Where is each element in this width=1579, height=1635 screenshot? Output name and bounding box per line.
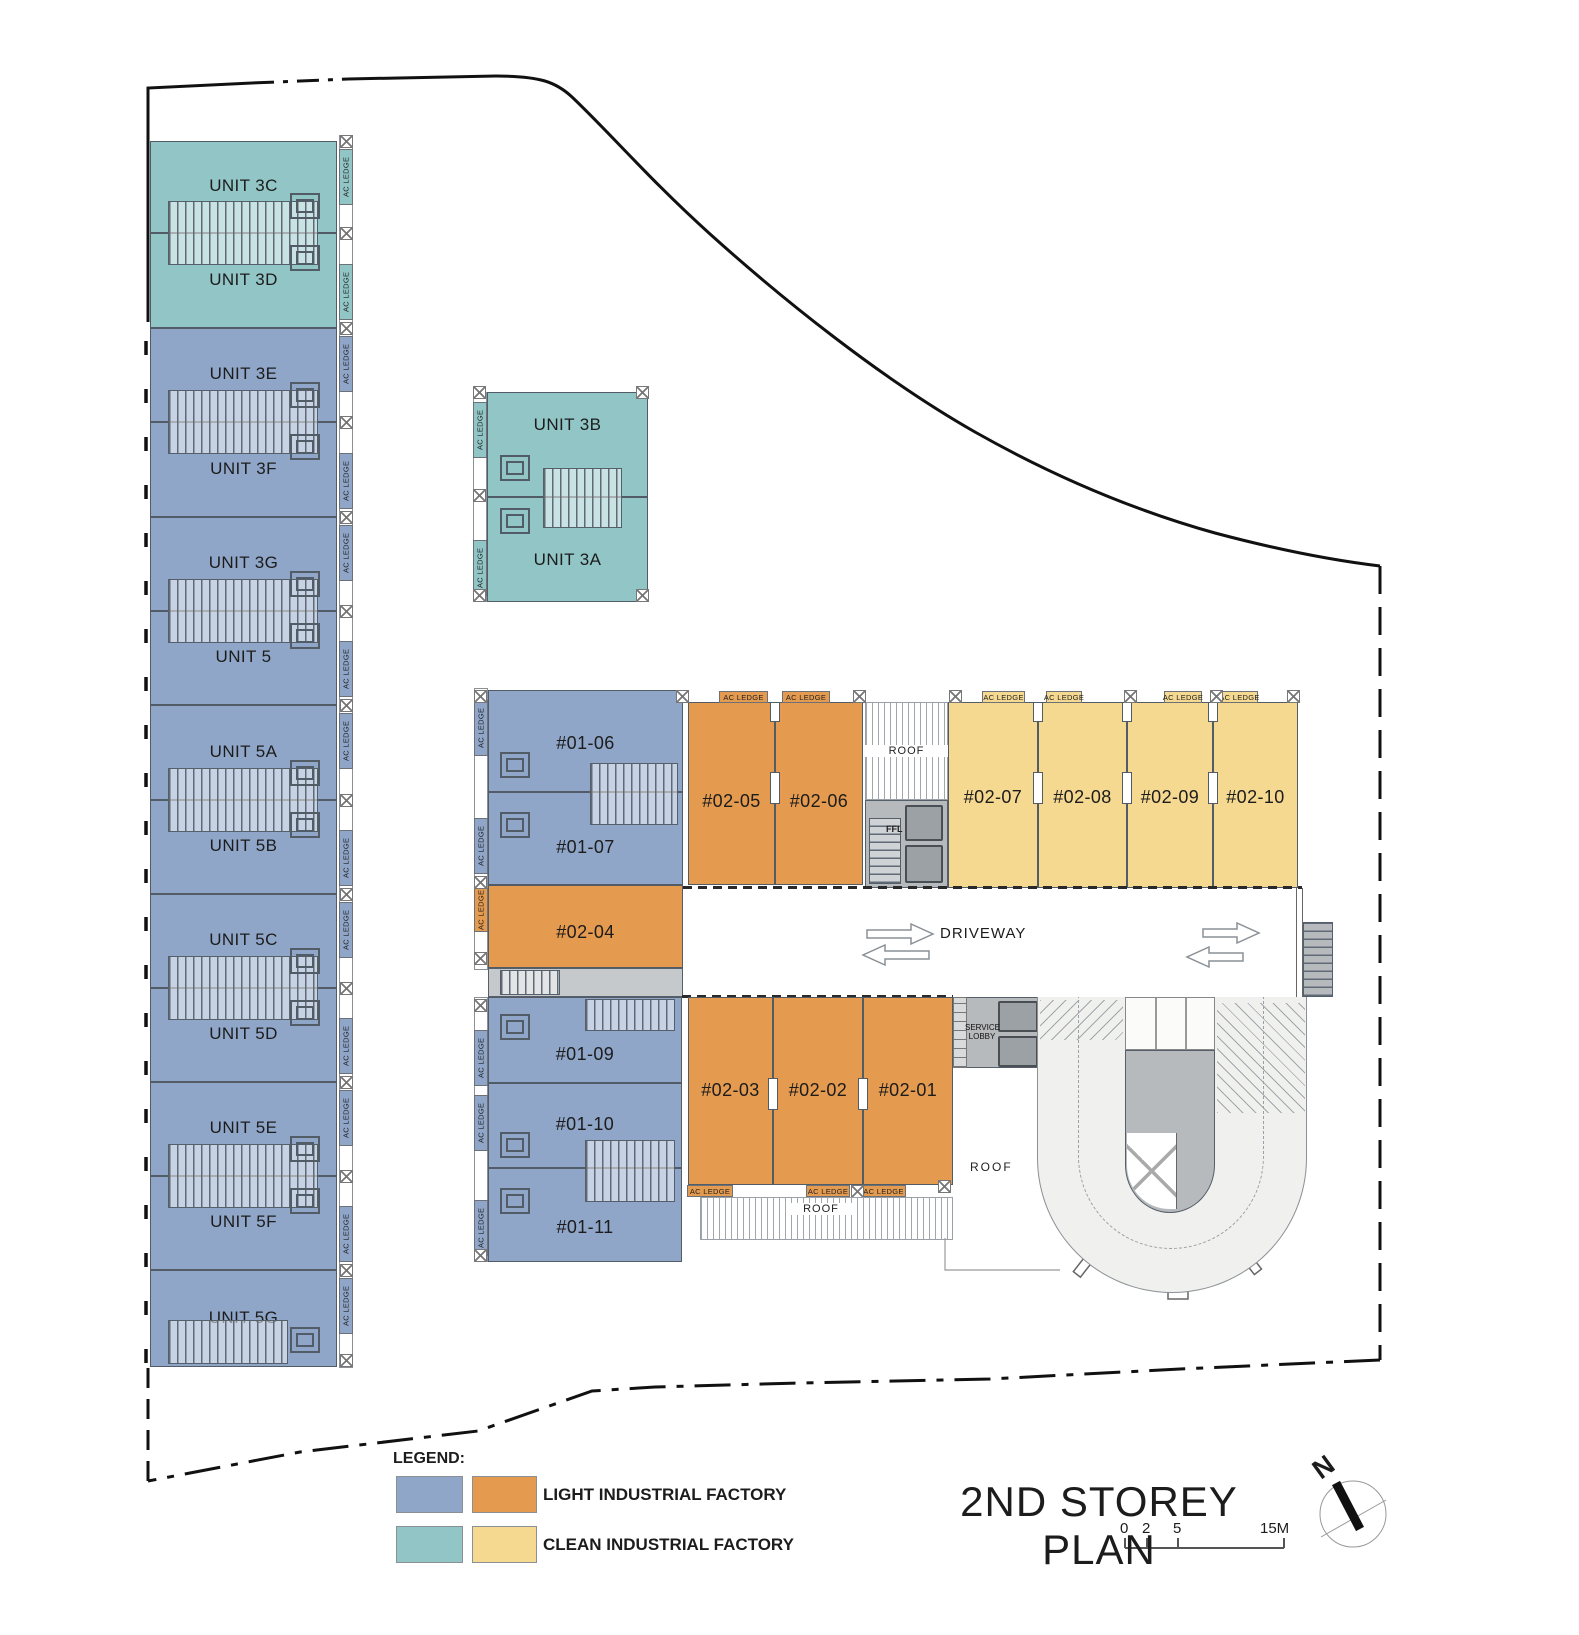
unit-label: #02-03 [689,1080,772,1101]
unit-02-02: #02-02 [773,997,863,1185]
legend-swatch-blue [396,1476,463,1513]
column-symbol-icon [290,382,320,408]
ledge-x-marker [340,982,353,995]
column-symbol-icon [290,948,320,974]
unit-label: #02-01 [864,1080,952,1101]
ac-ledge-label: AC LEDGE [474,1200,488,1256]
legend-swatch-orange [472,1476,537,1513]
ledge-x-marker [340,699,353,712]
ledge-x-marker [473,386,486,399]
column-symbol-icon [500,1014,530,1040]
ledge-x-marker [473,589,486,602]
ac-ledge-label: AC LEDGE [474,1030,488,1086]
wall-pier [1033,702,1043,722]
unit-02-08: #02-08 [1038,702,1127,888]
unit-label: UNIT 5D [151,1024,336,1044]
ledge-x-marker [636,589,649,602]
ledge-x-marker [474,999,487,1012]
lift-car [998,1001,1038,1032]
column-symbol-icon [290,760,320,786]
column-symbol-icon [290,1188,320,1214]
lift-car [905,845,943,883]
unit-label: #02-07 [949,787,1037,808]
site-boundary-bottom [148,1360,1380,1481]
stair-icon [500,970,560,995]
bay-divider [1185,998,1187,1049]
column-symbol-icon [290,1136,320,1162]
ledge-x-marker [676,690,689,703]
unit-02-09: #02-09 [1127,702,1213,888]
ac-ledge-label: AC LEDGE [339,1018,353,1074]
wall-pier [770,772,780,804]
ledge-x-marker [340,1076,353,1089]
column-symbol-icon [500,812,530,838]
ac-ledge-label: AC LEDGE [474,1095,488,1151]
unit-label: UNIT 3A [488,550,647,570]
scale-tick-label: 15M [1260,1520,1289,1537]
ledge-x-marker [949,690,962,703]
unit-label: UNIT 5B [151,836,336,856]
legend-item-label: CLEAN INDUSTRIAL FACTORY [543,1535,794,1555]
wall-pier [768,1078,778,1110]
ledge-x-marker [340,1264,353,1277]
wall-pier [1122,772,1132,804]
unit-02-04: #02-04 [488,885,683,968]
wall-pier [1122,702,1132,722]
ledge-x-marker [340,794,353,807]
wall-pier [770,702,780,722]
unit-label: UNIT 3G [151,553,336,573]
unit-label: #01-11 [489,1217,681,1238]
ledge-x-marker [340,1170,353,1183]
unit-label: #01-09 [489,1044,681,1065]
ledge-x-marker [340,1354,353,1367]
ledge-x-marker [340,605,353,618]
legend-swatch-yellow [472,1526,537,1563]
unit-label: #02-02 [774,1080,862,1101]
ac-ledge-label: AC LEDGE [1221,691,1258,703]
scale-tick-label: 2 [1142,1520,1150,1537]
ledge-x-marker [1287,690,1300,703]
unit-02-06: #02-06 [775,702,863,885]
ramp-chevron-hatch [1217,1003,1305,1113]
driveway-edge-dashed [683,886,1302,889]
ac-ledge-label: AC LEDGE [339,1278,353,1334]
column-symbol-icon [290,1327,320,1353]
unit-label: #02-06 [776,791,862,812]
ac-ledge-label: AC LEDGE [719,691,768,703]
ac-ledge-label: AC LEDGE [474,818,488,874]
column-symbol-icon [500,455,530,481]
page-title: 2ND STOREY PLAN [904,1478,1294,1574]
column-symbol-icon [290,571,320,597]
ledge-x-marker [1124,690,1137,703]
unit-02-07: #02-07 [948,702,1038,888]
driveway-right-wall [1296,888,1303,997]
unit-label: #02-09 [1128,787,1212,808]
unit-label: UNIT 5E [151,1118,336,1138]
ledge-x-marker [340,888,353,901]
column-symbol-icon [290,1000,320,1026]
ac-ledge-label: AC LEDGE [1164,691,1202,703]
ledge-x-marker [474,876,487,889]
ledge-x-marker [474,1249,487,1262]
north-arrow-icon [1320,1481,1386,1547]
unit-02-03: #02-03 [688,997,773,1185]
bay-divider [1155,998,1157,1049]
ledge-x-marker [474,690,487,703]
ac-ledge-label: AC LEDGE [782,691,830,703]
ledge-x-marker [340,227,353,240]
ac-ledge-label: AC LEDGE [687,1185,733,1197]
column-symbol-icon [290,193,320,219]
wall-pier [1208,772,1218,804]
ac-ledge-label: AC LEDGE [473,540,487,596]
ac-ledge-label: AC LEDGE [339,830,353,886]
ffl-label: FFL [886,824,903,834]
ledge-x-marker [853,690,866,703]
ac-ledge-label: AC LEDGE [339,336,353,392]
ac-ledge-label: AC LEDGE [339,902,353,958]
column-symbol-icon [290,812,320,838]
floor-plan-canvas: UNIT 3C UNIT 3D UNIT 3E UNIT 3F UNIT 3G … [0,0,1579,1635]
ledge-x-marker [340,416,353,429]
roof-apron-line [945,1238,1060,1270]
ledge-x-marker [474,952,487,965]
unit-label: #02-05 [689,791,774,812]
roof-label: ROOF [865,745,948,757]
column-symbol-icon [500,508,530,534]
ac-ledge-label: AC LEDGE [339,713,353,769]
ledge-x-marker [340,322,353,335]
roof-label: ROOF [790,1203,852,1215]
ac-ledge-label: AC LEDGE [339,641,353,697]
loading-bays [1125,997,1215,1050]
ramp-hatch [1040,1000,1123,1040]
unit-label: #01-07 [489,837,682,858]
ledge-x-marker [938,1180,951,1193]
column-symbol-icon [290,623,320,649]
site-boundary-dashdot [252,79,348,83]
scale-tick-label: 5 [1173,1520,1181,1537]
ac-ledge-label: AC LEDGE [339,1206,353,1262]
scale-tick-label: 0 [1120,1520,1128,1537]
legend-heading: LEGEND: [393,1450,465,1468]
stair-icon [585,1140,675,1202]
legend-swatch-teal [396,1526,463,1563]
lift-car [998,1036,1038,1067]
ac-ledge-label: AC LEDGE [339,453,353,509]
unit-label: UNIT 3D [151,270,336,290]
column-symbol-icon [500,1188,530,1214]
wall-pier [858,1078,868,1110]
ledge-x-marker [340,135,353,148]
unit-02-05: #02-05 [688,702,775,885]
north-label: N [1307,1449,1341,1486]
unit-label: UNIT 5 [151,647,336,667]
unit-label: #02-08 [1039,787,1126,808]
stair-icon [590,763,678,825]
unit-label: #01-06 [489,733,682,754]
ac-ledge-label: AC LEDGE [339,1090,353,1146]
unit-label: UNIT 5A [151,742,336,762]
ac-ledge-label: AC LEDGE [1046,691,1082,703]
ac-ledge-label: AC LEDGE [339,525,353,581]
service-lobby-label: SERVICE LOBBY [965,1023,999,1041]
unit-label: UNIT 5C [151,930,336,950]
ac-ledge-label: AC LEDGE [473,402,487,458]
ac-ledge-label: AC LEDGE [339,264,353,320]
unit-02-01: #02-01 [863,997,953,1185]
ac-ledge-label: AC LEDGE [982,691,1025,703]
unit-label: #02-10 [1214,787,1297,808]
ledge-x-marker [636,386,649,399]
column-symbol-icon [290,434,320,460]
column-symbol-icon [500,1132,530,1158]
ac-ledge-label: AC LEDGE [474,700,488,756]
driveway-label: DRIVEWAY [940,925,1026,942]
unit-label: UNIT 3E [151,364,336,384]
wall-pier [1033,772,1043,804]
stair-icon [168,1320,288,1364]
unit-02-10: #02-10 [1213,702,1298,888]
unit-label: UNIT 3F [151,459,336,479]
ledge-x-marker [473,489,486,502]
legend-item-label: LIGHT INDUSTRIAL FACTORY [543,1485,786,1505]
ac-ledge-label: AC LEDGE [474,888,488,932]
unit-label: UNIT 3B [488,415,647,435]
column-symbol-icon [500,752,530,778]
ledge-x-marker [1210,690,1223,703]
unit-label: #02-04 [489,922,682,943]
stair-icon [1303,922,1333,997]
ledge-x-marker [340,511,353,524]
lift-car [905,805,943,841]
ac-ledge-label: AC LEDGE [339,149,353,205]
stair-icon [543,468,622,528]
column-symbol-icon [290,245,320,271]
stair-icon [585,999,675,1031]
wall-pier [1208,702,1218,722]
ac-ledge-label: AC LEDGE [861,1185,906,1197]
ac-ledge-label: AC LEDGE [806,1185,850,1197]
unit-label: UNIT 5F [151,1212,336,1232]
roof-label: ROOF [970,1160,1013,1174]
